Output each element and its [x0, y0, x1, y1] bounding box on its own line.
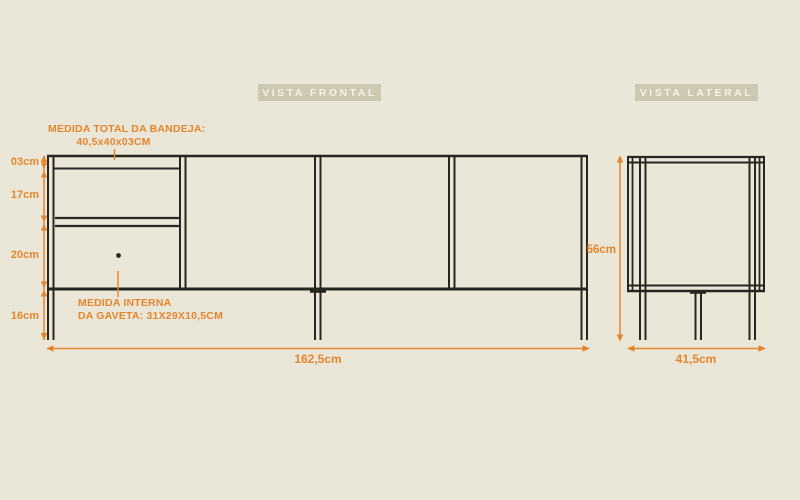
dim-label-total-height: 56cm — [566, 244, 616, 256]
side-depth-dimension — [627, 345, 766, 352]
drawer-note-line2: DA GAVETA: 31X29X10,5CM — [78, 310, 223, 323]
arrow-up-icon — [617, 156, 624, 163]
dim-label-total-width: 162,5cm — [268, 352, 368, 366]
arrow-up-icon — [41, 224, 48, 231]
dim-label-drawer1-height: 17cm — [4, 189, 39, 201]
front-height-dimension-chain — [41, 155, 48, 340]
drawer-note-line1: MEDIDA INTERNA — [78, 297, 171, 310]
arrow-right-icon — [583, 345, 591, 352]
technical-drawing-canvas: VISTA FRONTAL VISTA LATERAL MEDIDA TOTAL… — [0, 0, 800, 500]
arrow-right-icon — [759, 345, 767, 352]
arrow-up-icon — [41, 171, 48, 178]
arrow-down-icon — [41, 216, 48, 223]
dim-label-tray-height: 03cm — [4, 156, 39, 168]
front-width-dimension — [46, 345, 590, 352]
tray-note-line2: 40,5x40x03CM — [46, 136, 181, 149]
arrow-left-icon — [627, 345, 635, 352]
side-view-badge: VISTA LATERAL — [635, 84, 758, 101]
arrow-down-icon — [41, 282, 48, 289]
dim-label-leg-height: 16cm — [4, 310, 39, 322]
furniture-line-drawing — [0, 0, 800, 500]
side-height-dimension — [617, 156, 624, 342]
arrow-up-icon — [41, 155, 48, 162]
arrow-up-icon — [41, 290, 48, 297]
dim-label-drawer2-height: 20cm — [4, 249, 39, 261]
side-view-drawing — [627, 157, 765, 340]
arrow-left-icon — [46, 345, 54, 352]
tray-note-line1: MEDIDA TOTAL DA BANDEJA: — [48, 123, 205, 136]
arrow-down-icon — [617, 335, 624, 342]
front-view-badge: VISTA FRONTAL — [258, 84, 381, 101]
drawer-knob-dot — [116, 253, 121, 258]
dim-label-depth: 41,5cm — [646, 352, 746, 366]
arrow-down-icon — [41, 333, 48, 340]
arrow-down-icon — [41, 163, 48, 170]
